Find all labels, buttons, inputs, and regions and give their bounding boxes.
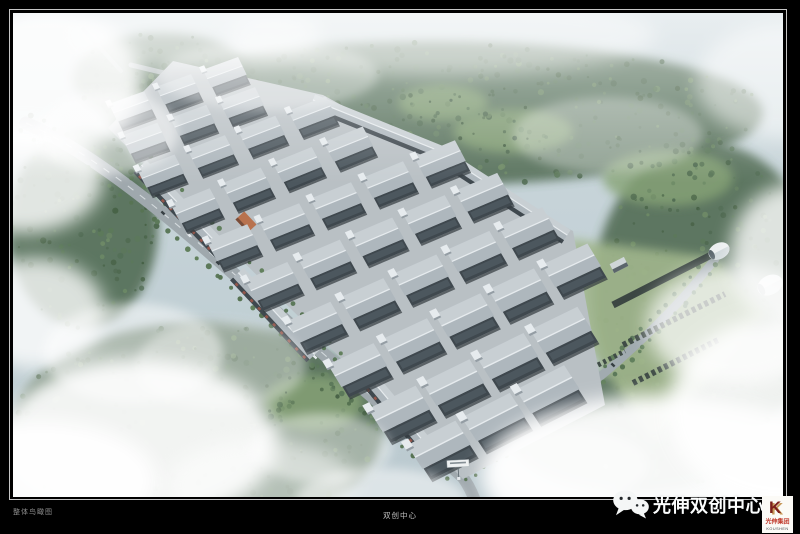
watermark-title: 光伸双创中心 bbox=[653, 492, 764, 518]
logo-company-cn: 光伸集团 bbox=[764, 518, 789, 526]
logo-monogram: K bbox=[769, 498, 782, 517]
logo-company-en: KOUSHEN bbox=[766, 527, 788, 531]
watermark: 光伸双创中心 K K 光伸集团 KOUSHEN bbox=[0, 0, 800, 534]
wechat-icon bbox=[612, 489, 650, 519]
company-logo: K K 光伸集团 KOUSHEN bbox=[762, 496, 793, 533]
